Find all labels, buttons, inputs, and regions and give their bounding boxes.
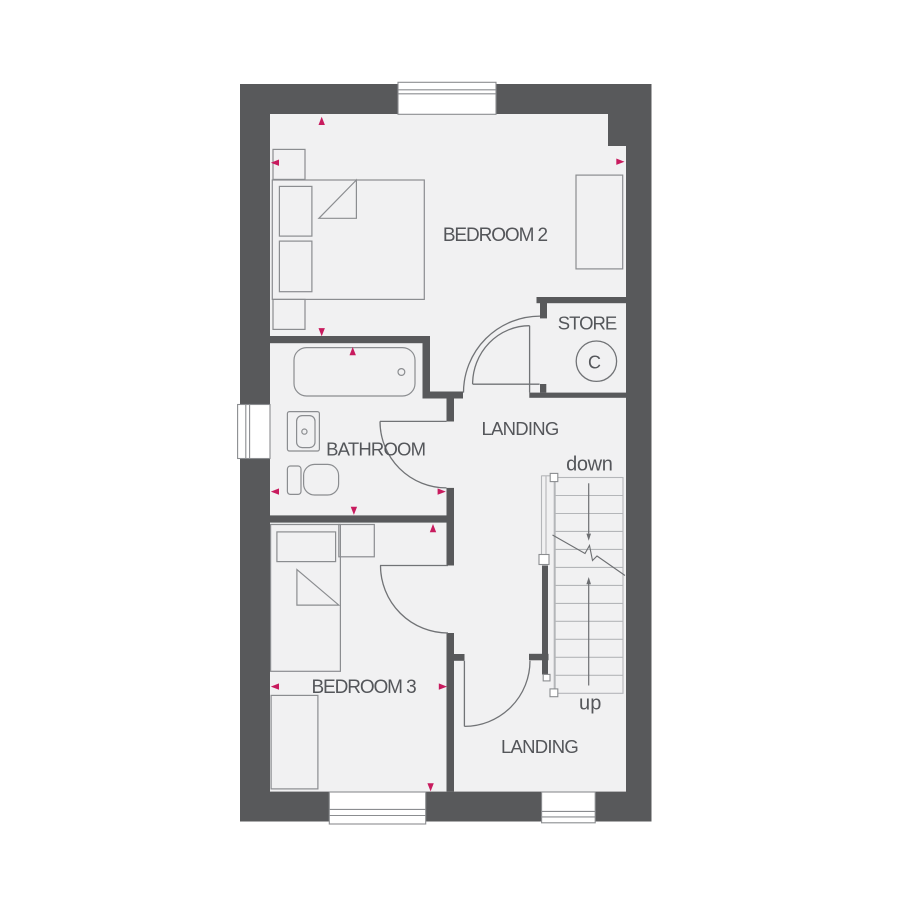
svg-text:STORE: STORE [558,313,617,334]
svg-text:LANDING: LANDING [482,418,559,439]
svg-text:C: C [588,352,601,372]
svg-text:down: down [566,453,612,475]
svg-text:BEDROOM 2: BEDROOM 2 [443,225,548,246]
svg-text:BATHROOM: BATHROOM [326,439,425,460]
svg-text:LANDING: LANDING [501,736,578,757]
svg-text:up: up [579,692,602,714]
svg-text:BEDROOM 3: BEDROOM 3 [311,677,416,698]
